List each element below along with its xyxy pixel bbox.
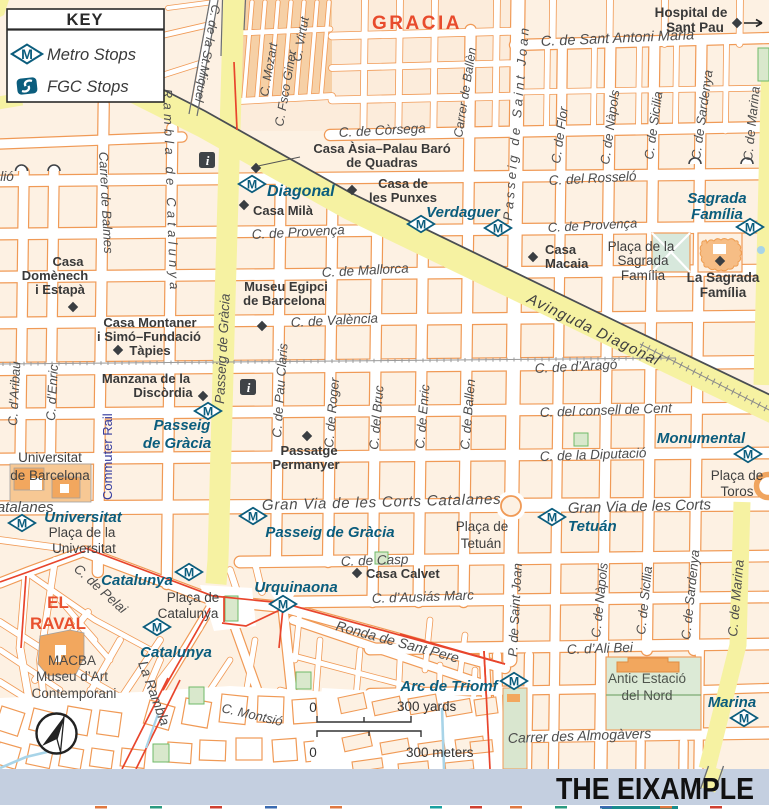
- svg-text:0: 0: [309, 745, 317, 760]
- svg-text:M: M: [745, 220, 755, 234]
- svg-text:Arc de Triomf: Arc de Triomf: [399, 678, 499, 695]
- svg-text:M: M: [17, 516, 27, 530]
- svg-text:Sant Pau: Sant Pau: [666, 20, 724, 35]
- svg-text:i Simó–Fundació: i Simó–Fundació: [97, 329, 201, 344]
- svg-text:Diagonal: Diagonal: [267, 183, 335, 200]
- svg-text:Antic Estació: Antic Estació: [608, 671, 686, 686]
- svg-text:M: M: [152, 620, 162, 634]
- svg-text:Tetuán: Tetuán: [461, 536, 502, 551]
- svg-text:300 yards: 300 yards: [397, 699, 457, 714]
- svg-text:Contemporani: Contemporani: [32, 686, 117, 701]
- svg-text:Plaça de la: Plaça de la: [49, 525, 116, 540]
- svg-text:Casa Milà: Casa Milà: [253, 203, 314, 218]
- svg-text:FGC Stops: FGC Stops: [47, 78, 129, 96]
- svg-text:MACBA: MACBA: [48, 653, 96, 668]
- svg-text:THE EIXAMPLE: THE EIXAMPLE: [556, 772, 754, 806]
- svg-text:Verdaguer: Verdaguer: [426, 204, 501, 221]
- svg-text:Manzana de la: Manzana de la: [102, 371, 191, 386]
- svg-text:i: i: [247, 380, 251, 395]
- svg-text:M: M: [547, 510, 557, 524]
- svg-text:Universitat: Universitat: [44, 509, 123, 526]
- svg-text:Plaça de: Plaça de: [711, 468, 764, 483]
- svg-text:Commuter Rail: Commuter Rail: [100, 413, 115, 500]
- svg-text:Universitat: Universitat: [52, 541, 116, 556]
- svg-text:Catalunya: Catalunya: [158, 606, 219, 621]
- svg-text:Domènech: Domènech: [22, 268, 89, 283]
- svg-text:Plaça de: Plaça de: [167, 590, 220, 605]
- svg-text:les Punxes: les Punxes: [369, 190, 437, 205]
- svg-text:Tetuán: Tetuán: [568, 518, 617, 535]
- svg-text:M: M: [509, 674, 519, 688]
- svg-text:Marina: Marina: [708, 694, 756, 711]
- svg-text:Catalunya: Catalunya: [140, 644, 212, 661]
- svg-text:Urquinaona: Urquinaona: [254, 579, 337, 596]
- svg-text:Monumental: Monumental: [657, 430, 746, 447]
- svg-text:Metro Stops: Metro Stops: [47, 46, 136, 64]
- svg-text:de Barcelona: de Barcelona: [243, 293, 325, 308]
- svg-text:Família: Família: [621, 268, 666, 283]
- svg-text:Catalunya: Catalunya: [101, 572, 173, 589]
- svg-text:Permanyer: Permanyer: [272, 457, 339, 472]
- svg-text:Passeig: Passeig: [154, 417, 211, 434]
- svg-text:Sagrada: Sagrada: [687, 190, 746, 207]
- svg-text:de Quadras: de Quadras: [346, 155, 418, 170]
- svg-text:Plaça de la: Plaça de la: [608, 239, 675, 254]
- svg-text:M: M: [743, 447, 753, 461]
- svg-text:M: M: [416, 217, 426, 231]
- svg-text:Sagrada: Sagrada: [617, 253, 669, 268]
- svg-text:de Barcelona: de Barcelona: [10, 468, 90, 483]
- svg-text:Tàpies: Tàpies: [129, 343, 170, 358]
- svg-text:GRACIA: GRACIA: [372, 13, 462, 34]
- svg-text:KEY: KEY: [67, 11, 104, 29]
- svg-text:de Gràcia: de Gràcia: [143, 435, 211, 452]
- svg-text:Casa Àsia–Palau Baró: Casa Àsia–Palau Baró: [313, 141, 450, 156]
- svg-text:M: M: [184, 565, 194, 579]
- svg-text:C. d’Enric: C. d’Enric: [43, 364, 61, 422]
- svg-text:Museu Egipci: Museu Egipci: [244, 279, 328, 294]
- svg-text:La Sagrada: La Sagrada: [687, 270, 760, 285]
- svg-text:Hospital de: Hospital de: [655, 5, 728, 20]
- svg-text:i: i: [206, 153, 210, 168]
- svg-text:Casa: Casa: [52, 254, 84, 269]
- svg-text:Casa de: Casa de: [378, 176, 428, 191]
- svg-text:M: M: [739, 711, 749, 725]
- svg-text:300 meters: 300 meters: [406, 745, 474, 760]
- svg-text:M: M: [248, 509, 258, 523]
- svg-text:Universitat: Universitat: [18, 450, 82, 465]
- svg-text:M: M: [21, 47, 33, 63]
- svg-text:Casa: Casa: [545, 242, 577, 257]
- svg-text:Passatge: Passatge: [280, 443, 337, 458]
- svg-text:RAVAL: RAVAL: [30, 614, 86, 633]
- svg-text:M: M: [493, 221, 503, 235]
- svg-text:del Nord: del Nord: [621, 688, 672, 703]
- svg-text:C. d’Ali Bei: C. d’Ali Bei: [567, 640, 635, 657]
- svg-text:Família: Família: [700, 285, 747, 300]
- svg-text:Macaia: Macaia: [545, 256, 589, 271]
- svg-text:Casa Calvet: Casa Calvet: [366, 566, 440, 581]
- svg-text:Família: Família: [691, 206, 743, 223]
- svg-text:0: 0: [309, 700, 317, 715]
- svg-text:Casa Montaner: Casa Montaner: [103, 315, 196, 330]
- svg-text:Passeig de Gràcia: Passeig de Gràcia: [265, 524, 394, 541]
- svg-text:selió: selió: [0, 169, 14, 184]
- svg-text:M: M: [247, 177, 257, 191]
- svg-text:Museu d’Art: Museu d’Art: [36, 669, 108, 684]
- svg-text:M: M: [278, 597, 288, 611]
- svg-text:Plaça de: Plaça de: [456, 519, 509, 534]
- svg-text:Discòrdia: Discòrdia: [133, 385, 193, 400]
- svg-text:i Estapà: i Estapà: [35, 282, 86, 297]
- svg-text:Toros: Toros: [720, 484, 753, 499]
- svg-text:EL: EL: [47, 593, 69, 612]
